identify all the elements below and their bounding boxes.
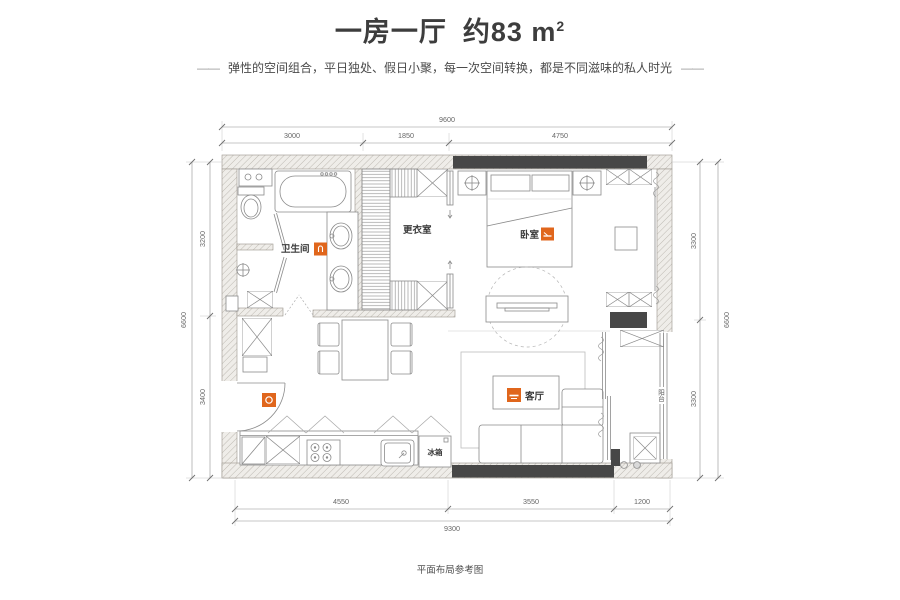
dining-chair (391, 323, 412, 346)
dim-right-total: 6600 (722, 312, 731, 328)
jamb-arrow-down (448, 210, 452, 218)
dim-bottom-2: 3550 (523, 497, 539, 506)
dim-top-2: 1850 (398, 131, 414, 140)
closet-xbox (606, 292, 629, 307)
fridge: 冰箱 (419, 436, 451, 467)
wardrobe-top (390, 169, 417, 197)
dim-right-1: 3300 (689, 233, 698, 249)
cabinet-xbox (247, 291, 273, 308)
dim-top-total: 9600 (439, 115, 455, 124)
kitchen: 冰箱 (240, 416, 451, 467)
bathroom-badge (314, 243, 327, 256)
cabinet-xbox (266, 436, 300, 464)
fridge-label: 冰箱 (428, 447, 443, 457)
washing-machine-icon (630, 433, 660, 463)
bed-icon (487, 171, 572, 267)
hall-cabinet-xbox (242, 318, 272, 356)
sink-icon (381, 440, 414, 466)
wardrobe-xbox-bottom (417, 281, 448, 310)
dressing-room: 更衣室 (362, 169, 453, 310)
wardrobe-bottom (390, 281, 417, 310)
entry-badge (262, 393, 276, 407)
floor-plan-page: 一房一厅约83 m2 ——弹性的空间组合，平日独处、假日小聚，每一次空间转换，都… (0, 0, 900, 600)
dimension-left: 3200 3400 6600 (179, 159, 223, 481)
vanity-sinks (327, 212, 358, 310)
shower-drain-icon (236, 263, 250, 277)
bench (615, 227, 637, 250)
dining-chair (318, 351, 339, 374)
dining-table (342, 320, 388, 380)
tv-stand (486, 296, 568, 322)
upper-cabinet-doors (268, 416, 450, 433)
dining-set (318, 320, 412, 380)
dim-left-1: 3200 (198, 231, 207, 247)
tv-console (486, 267, 568, 347)
dressing-room-label: 更衣室 (403, 224, 432, 236)
wall-dark-top (453, 156, 647, 169)
wall-shaft (226, 296, 238, 311)
living-room: 客厅 (461, 352, 603, 463)
closet-xbox (606, 169, 629, 185)
wardrobe-xbox-top (417, 169, 448, 197)
dim-top-3: 4750 (552, 131, 568, 140)
hall-cabinet (243, 357, 267, 372)
living-room-label: 客厅 (524, 391, 545, 403)
wardrobe-left (362, 169, 390, 310)
wall-dark-mid (610, 312, 647, 328)
dim-right-2: 3300 (689, 391, 698, 407)
laundry-counter (239, 169, 272, 186)
wall-dark-balcony (611, 449, 620, 466)
closet-xbox (629, 169, 652, 185)
bedroom-label: 卧室 (520, 229, 540, 241)
dim-top-1: 3000 (284, 131, 300, 140)
floor-drain-icon (634, 462, 641, 469)
closet-xbox (629, 292, 652, 307)
wall-dark-bottom (452, 465, 614, 478)
dim-left-2: 3400 (198, 389, 207, 405)
dimension-top: 9600 3000 1850 4750 (219, 115, 675, 151)
bathtub-icon (275, 171, 351, 212)
dim-bottom-1: 4550 (333, 497, 349, 506)
dimension-bottom: 4550 3550 1200 9300 (232, 480, 673, 533)
bathroom: 卫生间 (236, 169, 358, 315)
dining-chair (391, 351, 412, 374)
dim-left-total: 6600 (179, 312, 188, 328)
bedroom-badge (541, 228, 554, 241)
dining-chair (318, 323, 339, 346)
jamb-arrow-up (448, 261, 452, 269)
caption: 平面布局参考图 (0, 562, 900, 576)
dim-bottom-total: 9300 (444, 524, 460, 533)
toilet-icon (238, 187, 264, 219)
stove-icon (307, 440, 340, 465)
dim-bottom-3: 1200 (634, 497, 650, 506)
bathroom-label: 卫生间 (281, 243, 310, 255)
dimension-right: 3300 3300 6600 (671, 159, 731, 481)
floor-plan-drawing: 9600 3000 1850 4750 4550 3550 1200 9300 (0, 0, 900, 600)
door-swing-dashed (285, 295, 313, 315)
entry (237, 318, 285, 431)
ac-unit-xbox (620, 330, 664, 347)
bedroom: 卧室 (458, 169, 655, 307)
